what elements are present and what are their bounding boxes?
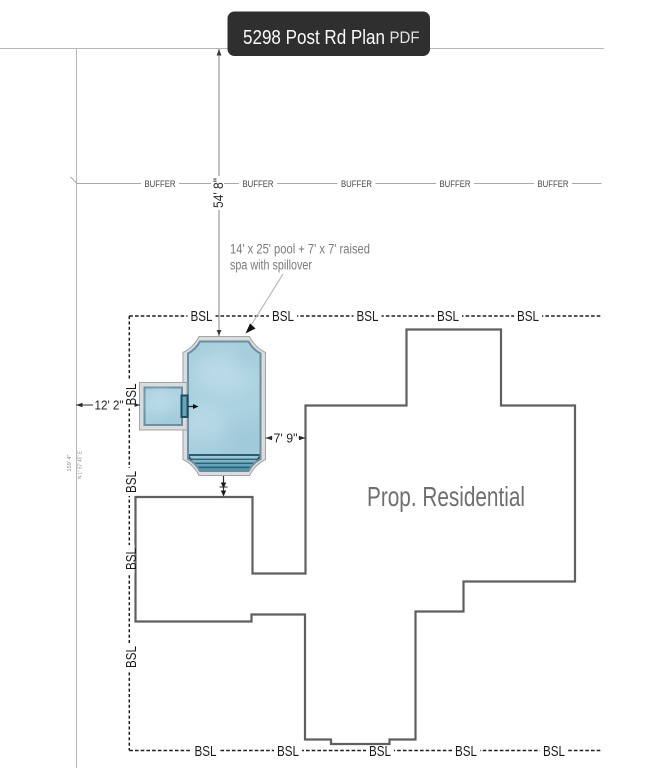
svg-text:BSL: BSL — [543, 743, 565, 760]
svg-text:BUFFER: BUFFER — [538, 179, 569, 189]
svg-text:N 1° 57' 45" E: N 1° 57' 45" E — [78, 450, 84, 479]
svg-text:BUFFER: BUFFER — [243, 179, 274, 189]
svg-text:BSL: BSL — [455, 743, 477, 760]
svg-text:7' 9": 7' 9" — [274, 431, 298, 446]
svg-text:BUFFER: BUFFER — [145, 179, 176, 189]
svg-text:54' 8": 54' 8" — [210, 178, 226, 208]
svg-text:BSL: BSL — [357, 308, 379, 325]
svg-text:BUFFER: BUFFER — [341, 179, 372, 189]
svg-text:BSL: BSL — [517, 308, 539, 325]
svg-text:159' 4": 159' 4" — [67, 454, 73, 471]
svg-text:BSL: BSL — [272, 308, 294, 325]
svg-text:BSL: BSL — [277, 743, 299, 760]
svg-text:14' x 25' pool + 7' x 7' raise: 14' x 25' pool + 7' x 7' raised — [230, 242, 370, 257]
svg-text:PDF: PDF — [390, 28, 420, 47]
svg-text:BSL: BSL — [123, 646, 140, 668]
svg-text:12' 2": 12' 2" — [95, 398, 124, 413]
svg-text:BSL: BSL — [191, 308, 213, 325]
svg-text:BSL: BSL — [123, 548, 140, 570]
svg-text:spa with spillover: spa with spillover — [230, 258, 312, 273]
svg-text:BSL: BSL — [123, 384, 140, 406]
svg-text:BUFFER: BUFFER — [440, 179, 471, 189]
svg-text:BSL: BSL — [369, 743, 391, 760]
svg-text:BSL: BSL — [437, 308, 459, 325]
svg-text:5298 Post Rd Plan: 5298 Post Rd Plan — [243, 26, 385, 49]
svg-text:BSL: BSL — [123, 471, 140, 493]
svg-text:BSL: BSL — [195, 743, 217, 760]
svg-text:Prop. Residential: Prop. Residential — [367, 481, 525, 512]
